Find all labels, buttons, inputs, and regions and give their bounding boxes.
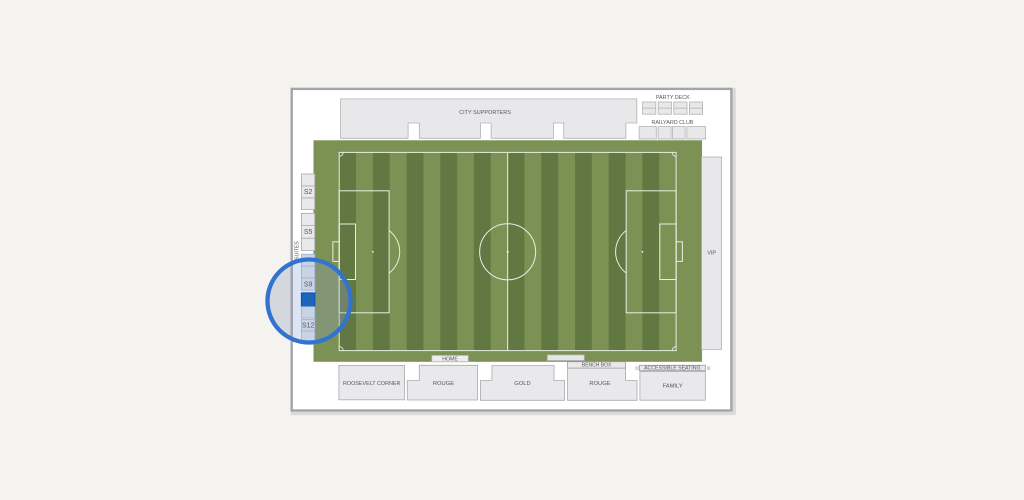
svg-text:ROOSEVELT CORNER: ROOSEVELT CORNER [343, 381, 400, 387]
svg-text:SUITES: SUITES [294, 241, 300, 260]
svg-text:PARTY DECK: PARTY DECK [656, 95, 690, 101]
svg-text:ACCESSIBLE SEATING: ACCESSIBLE SEATING [644, 366, 700, 372]
svg-text:CITY SUPPORTERS: CITY SUPPORTERS [459, 110, 511, 116]
svg-text:S10: S10 [302, 297, 315, 304]
svg-text:HOME: HOME [442, 356, 458, 362]
svg-text:ROUGE: ROUGE [589, 381, 610, 387]
svg-text:FAMILY: FAMILY [663, 384, 683, 390]
svg-text:VIP: VIP [707, 250, 716, 256]
svg-text:RAILYARD CLUB: RAILYARD CLUB [651, 120, 693, 126]
svg-text:ROUGE: ROUGE [433, 381, 454, 387]
svg-text:S9: S9 [304, 282, 313, 289]
svg-text:BENCH BOX: BENCH BOX [582, 363, 612, 369]
svg-text:GOLD: GOLD [514, 381, 530, 387]
svg-text:S12: S12 [302, 323, 315, 330]
svg-text:S2: S2 [304, 189, 313, 196]
svg-text:S5: S5 [304, 229, 313, 236]
